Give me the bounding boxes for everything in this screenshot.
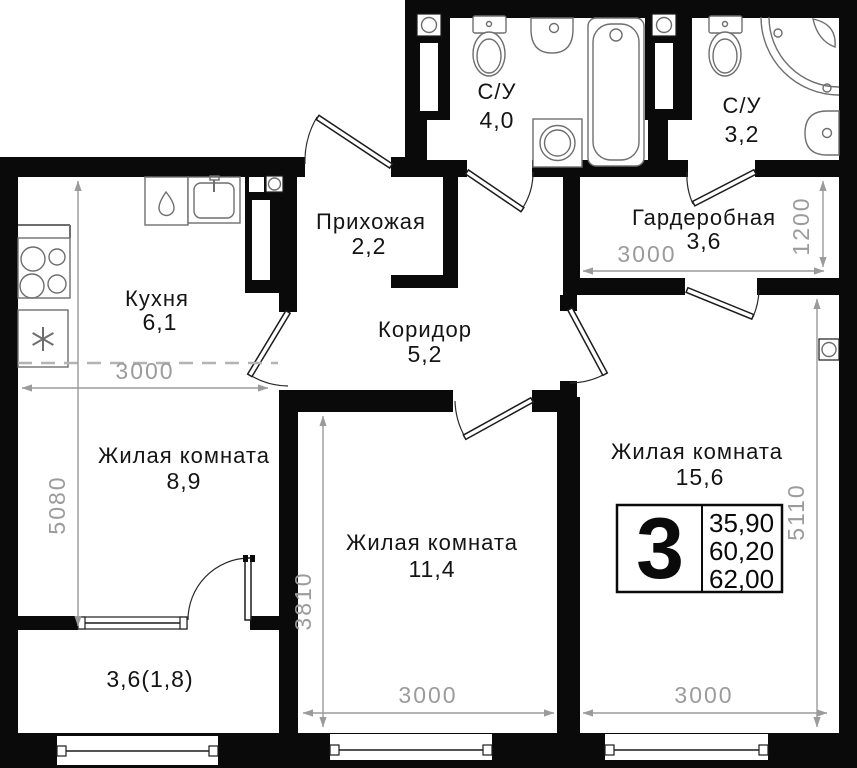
window <box>330 734 492 760</box>
balcony-door-icon <box>245 558 251 620</box>
dimension-label: 3000 <box>674 682 733 708</box>
balcony-area: 3,6(1,8) <box>106 666 193 692</box>
entry-label: Прихожая <box>316 209 426 234</box>
wall-segment <box>279 390 453 412</box>
wall-segment <box>391 275 443 288</box>
shower-head-icon <box>813 19 835 47</box>
door-icon <box>248 311 291 377</box>
door-arc <box>455 401 465 437</box>
window-cap <box>78 617 85 629</box>
window-cap <box>209 746 218 756</box>
wall-segment <box>839 0 857 768</box>
kitchen-area: 6,1 <box>143 309 178 335</box>
shaft-slot <box>252 200 270 280</box>
vent-insets <box>249 14 839 360</box>
entrance-door-icon <box>316 115 392 168</box>
dimension-label: 3000 <box>617 241 676 267</box>
bath3-label: С/У <box>723 93 762 118</box>
living114-label: Жилая комната <box>346 530 518 555</box>
living156-label: Жилая комната <box>611 439 783 464</box>
window-cap <box>57 746 66 756</box>
door-icon <box>463 398 533 440</box>
door-arc <box>188 558 248 620</box>
wall-segment <box>0 616 78 630</box>
wall-segment <box>279 293 297 312</box>
window-cap <box>605 745 614 755</box>
window-cap <box>180 617 187 629</box>
wall-segment <box>405 160 467 177</box>
bath4-label: С/У <box>478 79 517 104</box>
dimension-label: 3000 <box>115 358 174 384</box>
door-arc <box>250 375 288 386</box>
door-icon <box>568 308 607 376</box>
shower-handle-icon <box>823 84 831 92</box>
wall-segment <box>563 163 580 282</box>
dimension-label: 5080 <box>44 475 70 534</box>
window-cap <box>483 745 492 755</box>
bath4-area: 4,0 <box>480 107 515 133</box>
wardrobe-area: 3,6 <box>687 228 722 254</box>
door-hinge <box>250 555 255 562</box>
shaft-slot <box>420 43 438 111</box>
door-icon <box>466 170 524 212</box>
window <box>605 734 768 760</box>
shaft-slot <box>249 177 264 192</box>
corridor-label: Коридор <box>378 317 472 342</box>
wall-segment <box>0 157 18 768</box>
total-area-value: 62,00 <box>709 564 774 594</box>
wall-segment <box>755 160 839 177</box>
living114-area: 11,4 <box>408 556 455 582</box>
dimension-label: 3810 <box>290 571 316 630</box>
bath3-area: 3,2 <box>725 121 760 147</box>
door-hinge <box>243 555 248 562</box>
bathtub-icon <box>588 18 644 166</box>
wall-segment <box>443 177 458 288</box>
floor-plan-canvas: 3000 5080 3000 1200 3810 3000 3000 5110 … <box>0 0 857 768</box>
dimension-label: 1200 <box>788 196 814 255</box>
wall-segment <box>560 295 577 311</box>
wardrobe-label: Гардеробная <box>632 205 776 230</box>
dishwasher-icon <box>145 177 188 225</box>
living156-area: 15,6 <box>676 464 725 490</box>
kitchen-fixtures <box>18 176 240 367</box>
wall-segment <box>563 278 685 295</box>
floor-plan: 3000 5080 3000 1200 3810 3000 3000 5110 … <box>0 0 857 768</box>
wall-segment <box>405 0 857 18</box>
shower-handle-icon <box>774 29 782 37</box>
door-arc <box>305 117 317 164</box>
wall-segment <box>557 397 580 733</box>
wall-segment <box>279 390 298 733</box>
apartment-info-badge: 3 35,90 60,20 62,00 <box>617 501 782 597</box>
dimension-label: 3000 <box>398 682 457 708</box>
toilet-icon <box>473 16 506 33</box>
door-icon <box>686 288 754 319</box>
usable-area-value: 60,20 <box>709 536 774 566</box>
wall-segment <box>532 390 560 412</box>
kitchen-label: Кухня <box>125 286 189 311</box>
dimension-label: 5110 <box>783 483 809 540</box>
window-cap <box>330 745 339 755</box>
wall-segment <box>648 120 668 163</box>
living-area-value: 35,90 <box>709 508 774 538</box>
toilet-icon <box>709 16 742 33</box>
door-icon <box>693 170 757 206</box>
living89-label: Жилая комната <box>98 443 270 468</box>
living89-area: 8,9 <box>167 468 202 494</box>
entry-area: 2,2 <box>352 233 387 259</box>
shaft-slot <box>655 43 673 109</box>
wall-segment <box>757 278 839 295</box>
room-count: 3 <box>636 501 684 597</box>
corridor-area: 5,2 <box>408 341 443 367</box>
door-arc <box>522 172 533 209</box>
window-cap <box>759 745 768 755</box>
